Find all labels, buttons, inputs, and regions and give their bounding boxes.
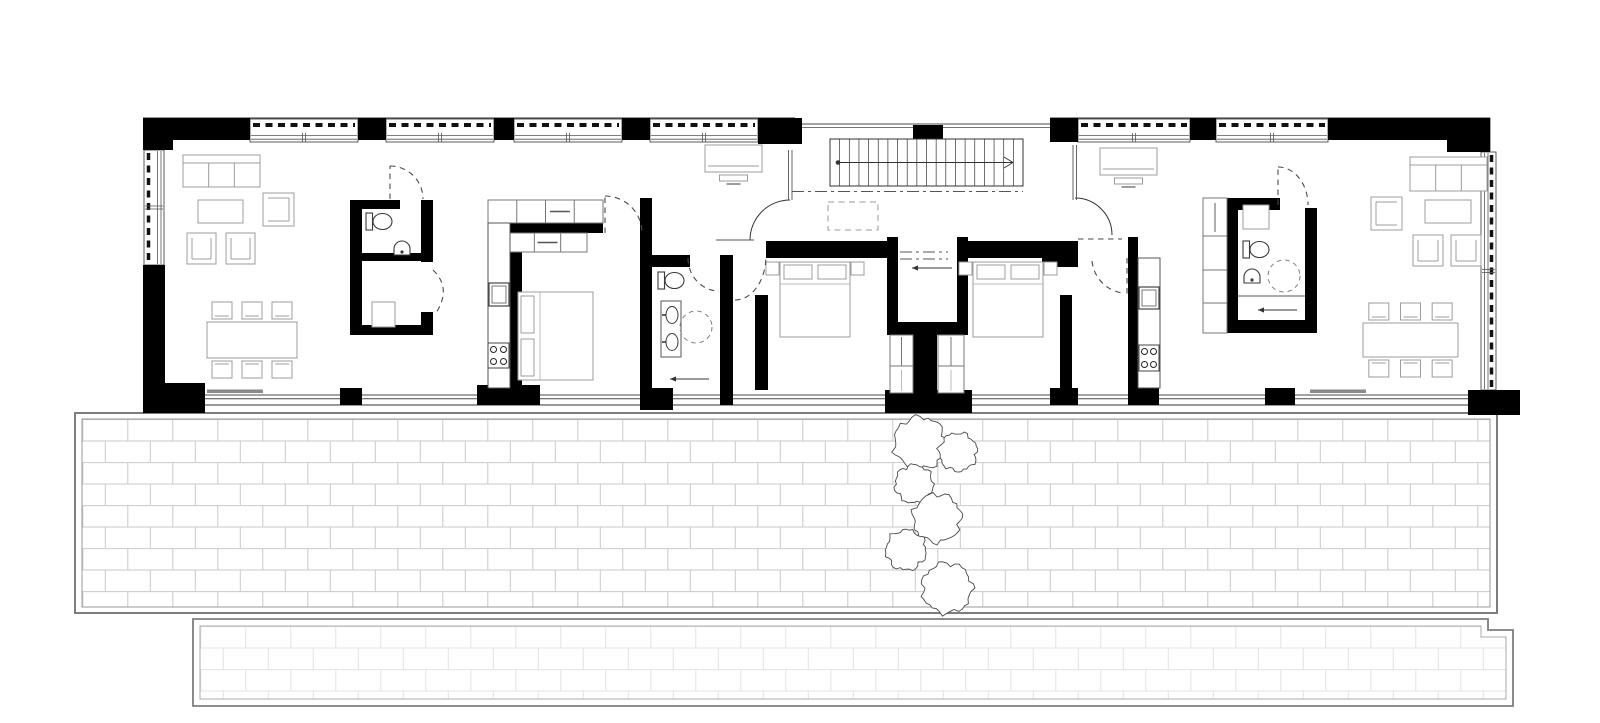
window-strip (650, 119, 758, 142)
basin-wc-west (394, 241, 410, 255)
sofa-west (183, 155, 260, 187)
window-strip (1078, 119, 1190, 142)
toilet-wc-west (366, 213, 392, 230)
wall (1050, 388, 1078, 405)
wall (887, 322, 968, 335)
oven-east (1139, 287, 1159, 309)
sliding-door (1310, 390, 1366, 394)
cabinet-bath-east (1243, 205, 1269, 229)
floor-plan (0, 0, 1600, 723)
lower-terrace-paving (193, 619, 1513, 706)
cooktop-east (1139, 345, 1159, 371)
window-strip (250, 119, 358, 142)
armchair-west-2 (187, 233, 216, 264)
wardrobe-bedroom-west (508, 233, 587, 252)
bed-west (518, 292, 593, 380)
wall (421, 200, 433, 262)
nightstand-ce-1 (959, 262, 972, 275)
wall (1468, 390, 1520, 415)
wall (358, 118, 386, 140)
wall (350, 200, 400, 209)
wall (143, 383, 205, 413)
storage-box-west (372, 302, 395, 327)
wall (1227, 320, 1317, 333)
tall-closet-east (1203, 198, 1227, 333)
nightstand-ce-2 (1044, 262, 1057, 275)
wall (1060, 295, 1072, 390)
bed-center-east (973, 262, 1043, 337)
wall (720, 255, 733, 405)
armchair-west-1 (263, 193, 294, 226)
closet-center-west (890, 335, 913, 393)
kitchen-upper-cabinets-west (488, 200, 603, 223)
floor-plan-svg (0, 0, 1600, 723)
toilet-bath-east (1243, 241, 1269, 258)
armchair-east-3 (1451, 235, 1481, 266)
window-strip (1216, 119, 1328, 142)
wall (1305, 208, 1317, 333)
dining-set-east (1363, 303, 1458, 377)
basin-bath-east (1244, 269, 1260, 283)
closet-center-east (938, 335, 964, 393)
wall (1190, 118, 1216, 140)
wall (1447, 118, 1490, 152)
dining-set-west (207, 302, 297, 378)
vanity-bath-west (661, 301, 681, 357)
wall (510, 223, 603, 233)
wall (652, 255, 690, 267)
armchair-east-1 (1371, 197, 1402, 230)
window-strip (514, 119, 622, 142)
sliding-door (207, 390, 263, 394)
wall (755, 295, 768, 390)
wall (1128, 237, 1138, 387)
cooktop-west (488, 343, 509, 368)
oven-west (489, 283, 509, 306)
nightstand-cw-1 (766, 262, 779, 275)
coffee-table-west (198, 200, 243, 223)
wall (913, 335, 937, 393)
wall (1265, 388, 1295, 405)
wall (758, 118, 802, 144)
wall (1227, 208, 1238, 320)
toilet-bath-west (658, 272, 684, 289)
wall (340, 388, 362, 405)
window-strip-side (144, 150, 164, 265)
wall (143, 118, 165, 150)
sofa-east (1410, 157, 1487, 191)
wall (1050, 118, 1078, 142)
wall (622, 118, 650, 140)
terrace-paving (75, 413, 1497, 613)
armchair-west-3 (226, 233, 255, 264)
wall (766, 241, 890, 258)
bed-center-west (780, 262, 850, 337)
wall (350, 200, 362, 335)
window-strip (386, 119, 494, 142)
wall (887, 237, 898, 335)
coffee-table-east (1425, 200, 1471, 223)
nightstand-cw-2 (851, 262, 864, 275)
wall (494, 118, 514, 140)
armchair-east-2 (1413, 235, 1443, 266)
